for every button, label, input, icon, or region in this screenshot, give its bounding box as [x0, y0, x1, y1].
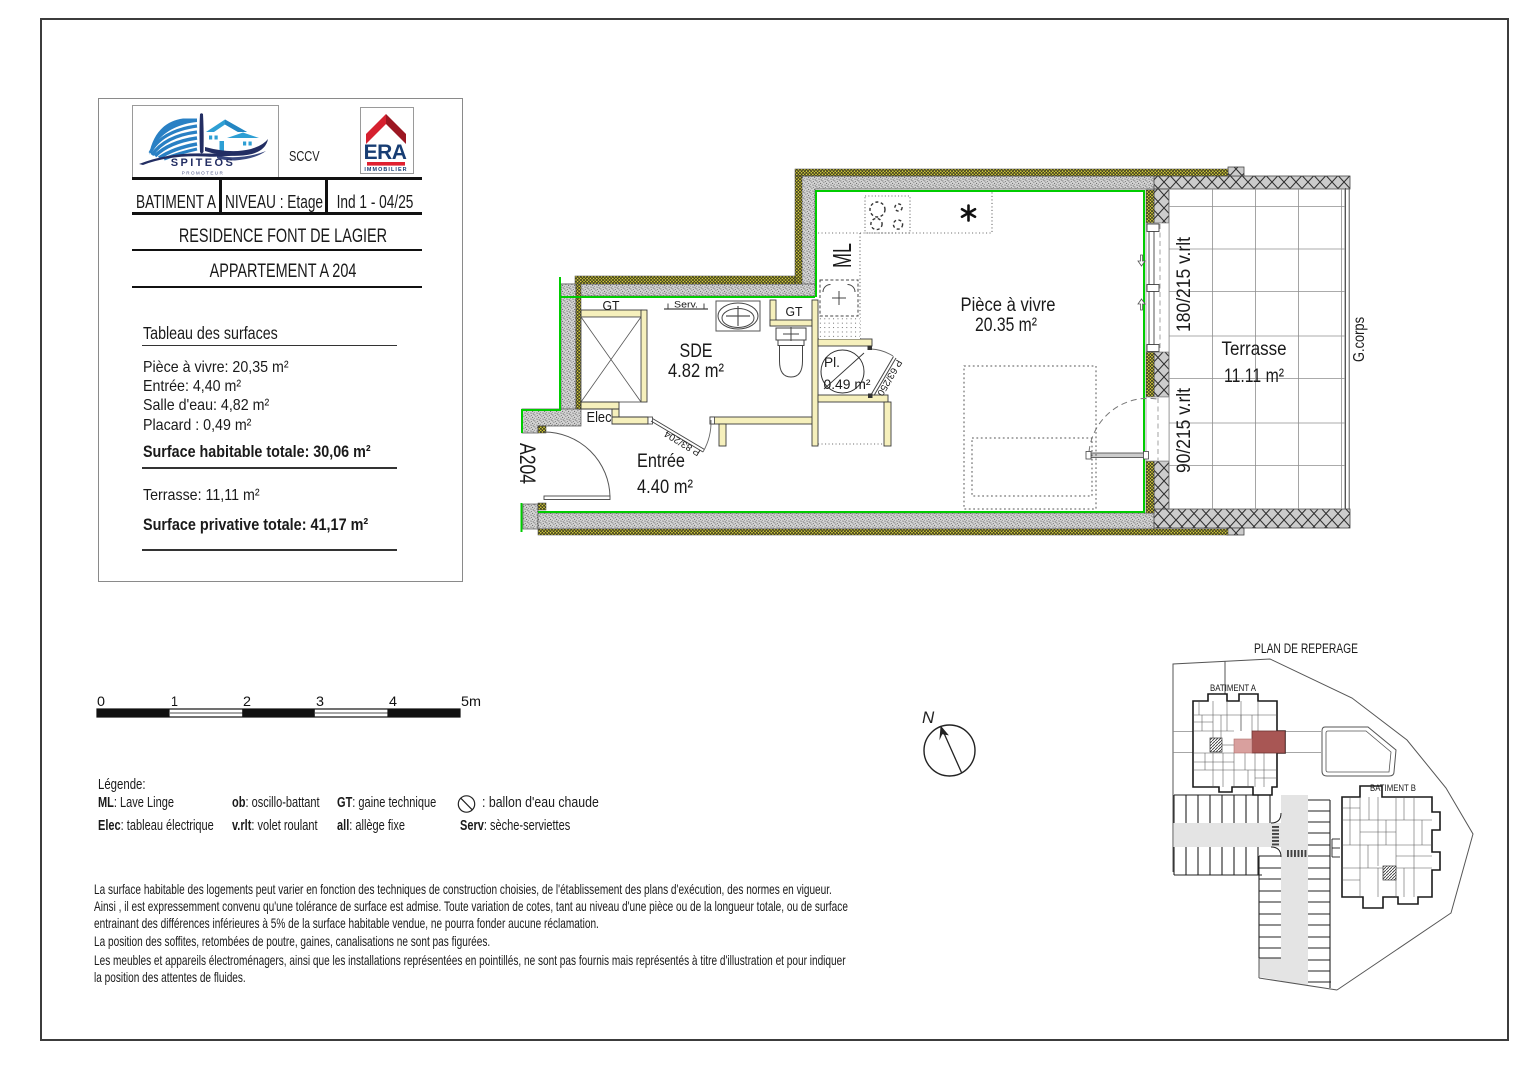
svg-text:ERA: ERA: [364, 141, 407, 164]
svg-text:Pl.: Pl.: [824, 355, 840, 370]
svg-text:N: N: [922, 708, 935, 727]
svg-text:Elec: Elec: [587, 409, 612, 426]
svg-text:BATIMENT A: BATIMENT A: [1210, 683, 1256, 693]
svg-text:2: 2: [243, 693, 251, 709]
svg-text:Pièce à vivre: Pièce à vivre: [961, 295, 1056, 316]
svg-text:180/215 v.rlt: 180/215 v.rlt: [1174, 236, 1195, 332]
svg-text:PROMOTEUR: PROMOTEUR: [182, 171, 224, 176]
svg-text:4: 4: [389, 693, 397, 709]
svg-text:4.40 m²: 4.40 m²: [637, 477, 693, 498]
svg-text:20.35 m²: 20.35 m²: [975, 315, 1037, 336]
svg-text:1: 1: [171, 693, 178, 709]
svg-text:0: 0: [97, 693, 105, 709]
svg-text:90/215 v.rlt: 90/215 v.rlt: [1174, 387, 1195, 473]
svg-text:PLAN DE REPERAGE: PLAN DE REPERAGE: [1254, 641, 1358, 656]
svg-text:GT: GT: [603, 299, 620, 313]
svg-text:Terrasse: Terrasse: [1222, 338, 1287, 360]
svg-text:SDE: SDE: [680, 341, 713, 362]
svg-text:Serv.: Serv.: [674, 300, 698, 310]
svg-text:0.49 m²: 0.49 m²: [824, 377, 872, 392]
svg-text:4.82 m²: 4.82 m²: [668, 361, 724, 382]
svg-text:ML: ML: [827, 243, 857, 268]
svg-text:5m: 5m: [461, 693, 481, 709]
svg-text:A204: A204: [515, 443, 540, 484]
svg-text:11.11 m²: 11.11 m²: [1224, 365, 1284, 387]
svg-text:3: 3: [316, 693, 324, 709]
svg-text:GT: GT: [786, 305, 803, 319]
svg-text:Entrée: Entrée: [637, 451, 685, 472]
svg-text:SPITEOS: SPITEOS: [171, 157, 235, 169]
svg-text:G.corps: G.corps: [1351, 317, 1368, 362]
svg-text:BATIMENT B: BATIMENT B: [1370, 783, 1416, 793]
svg-text:IMMOBILIER: IMMOBILIER: [364, 167, 407, 172]
